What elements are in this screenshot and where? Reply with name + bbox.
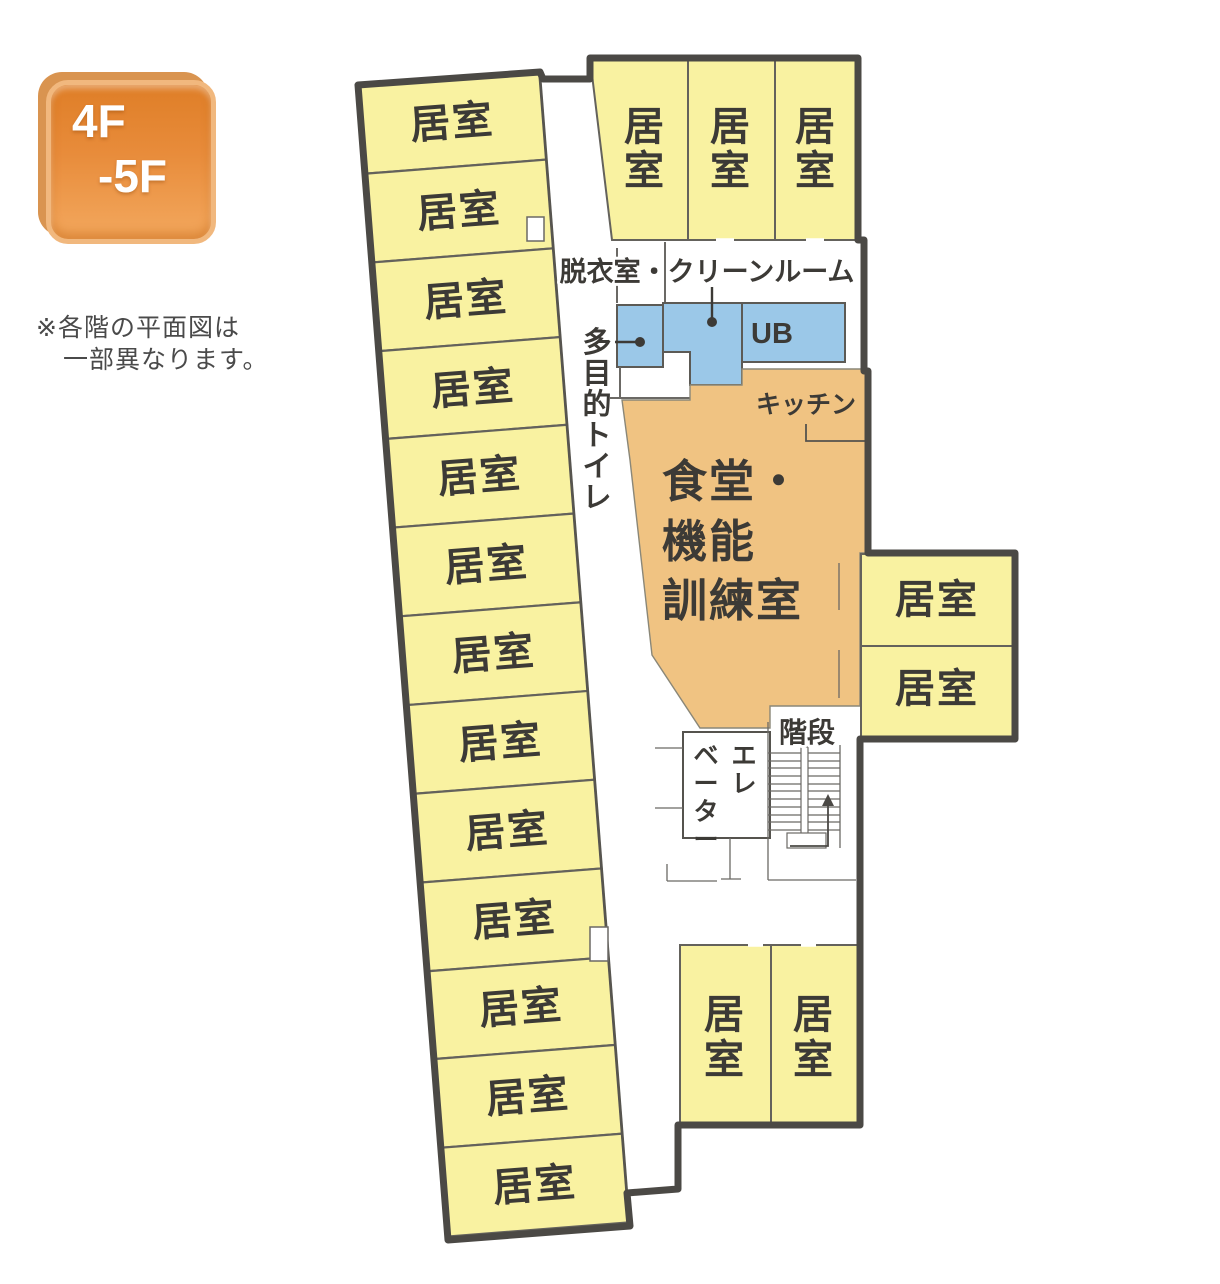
elevator-label: エレ xyxy=(731,742,756,798)
room-label: 居室 xyxy=(429,364,516,414)
leader-dot xyxy=(635,337,645,347)
room-label: 居室 xyxy=(484,1072,571,1122)
accessible-toilet-room xyxy=(617,305,663,367)
room-label: 居室 xyxy=(793,993,835,1082)
kitchen-label: キッチン xyxy=(756,391,856,419)
room-label: 居室 xyxy=(710,105,752,193)
room-label: 居室 xyxy=(895,667,979,711)
accessible-toilet-label: 多目的トイレ xyxy=(582,326,611,514)
stairs-label: 階段 xyxy=(779,716,835,748)
room-label: 居室 xyxy=(416,186,503,236)
wall-notch xyxy=(590,927,608,961)
room-label: 居室 xyxy=(895,578,979,622)
room-label: 居室 xyxy=(422,275,509,325)
dining-label-line1: 食堂・ xyxy=(662,456,803,507)
room-label: 居室 xyxy=(457,718,544,768)
dressing-clean-room-label: 脱衣室・クリーンルーム xyxy=(560,256,855,287)
leader-dot xyxy=(707,317,717,327)
dining-label-line3: 訓練室 xyxy=(662,575,803,626)
room-label: 居室 xyxy=(450,629,537,679)
room-label: 居室 xyxy=(704,993,746,1082)
floor-plan-page: 4F -5F ※各階の平面図は 一部異なります。 居室 居 xyxy=(0,0,1220,1284)
stair-rail xyxy=(801,747,808,835)
floor-plan-svg: 居室 居室 居室 居室 居室 居室 居室 居室 居室 居室 居室 居室 居室 居… xyxy=(0,0,1220,1284)
room-label: 居室 xyxy=(409,98,496,148)
room-label: 居室 xyxy=(795,105,837,193)
room-label: 居室 xyxy=(624,105,666,193)
room-label: 居室 xyxy=(491,1160,578,1210)
unit-bath-label: UB xyxy=(751,318,793,350)
elevator-label: ベーター xyxy=(693,742,718,854)
room-label: 居室 xyxy=(478,983,565,1033)
room-label: 居室 xyxy=(443,540,530,590)
room-label: 居室 xyxy=(436,452,523,502)
wall-notch xyxy=(527,217,544,241)
dining-label-line2: 機能 xyxy=(662,516,756,567)
room-label: 居室 xyxy=(464,806,551,856)
room-label: 居室 xyxy=(471,895,558,945)
